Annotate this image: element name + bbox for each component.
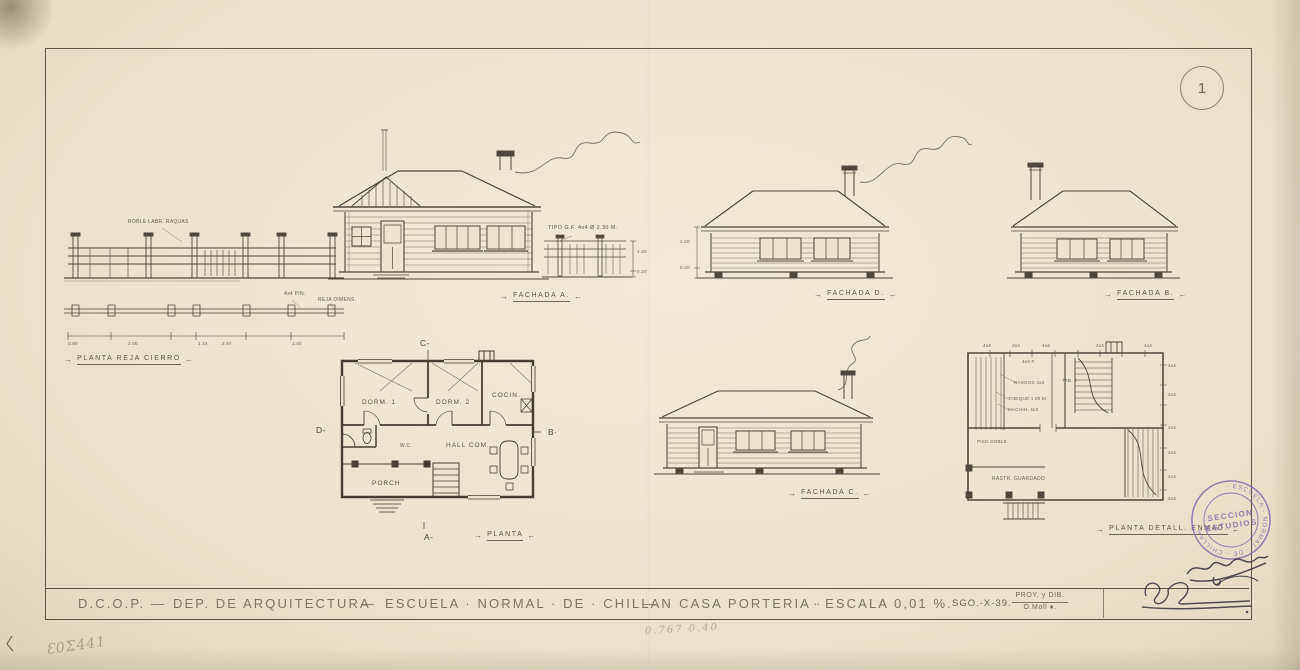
stamp-signature-layer: · ESCUELA · NORMAL · DE · CHILLAN · SECC… (0, 0, 1300, 670)
section-estudios-stamp: · ESCUELA · NORMAL · DE · CHILLAN · SECC… (1187, 476, 1275, 564)
ink-signature (1187, 556, 1268, 585)
stamp-rim-text: · ESCUELA · NORMAL · DE · CHILLAN · (1189, 478, 1273, 562)
drawing-sheet: · ESCUELA · NORMAL · DE · CHILLAN · SECC… (0, 0, 1300, 670)
svg-text:· ESCUELA · NORMAL · DE · CHIL: · ESCUELA · NORMAL · DE · CHILLAN · (1189, 478, 1273, 562)
